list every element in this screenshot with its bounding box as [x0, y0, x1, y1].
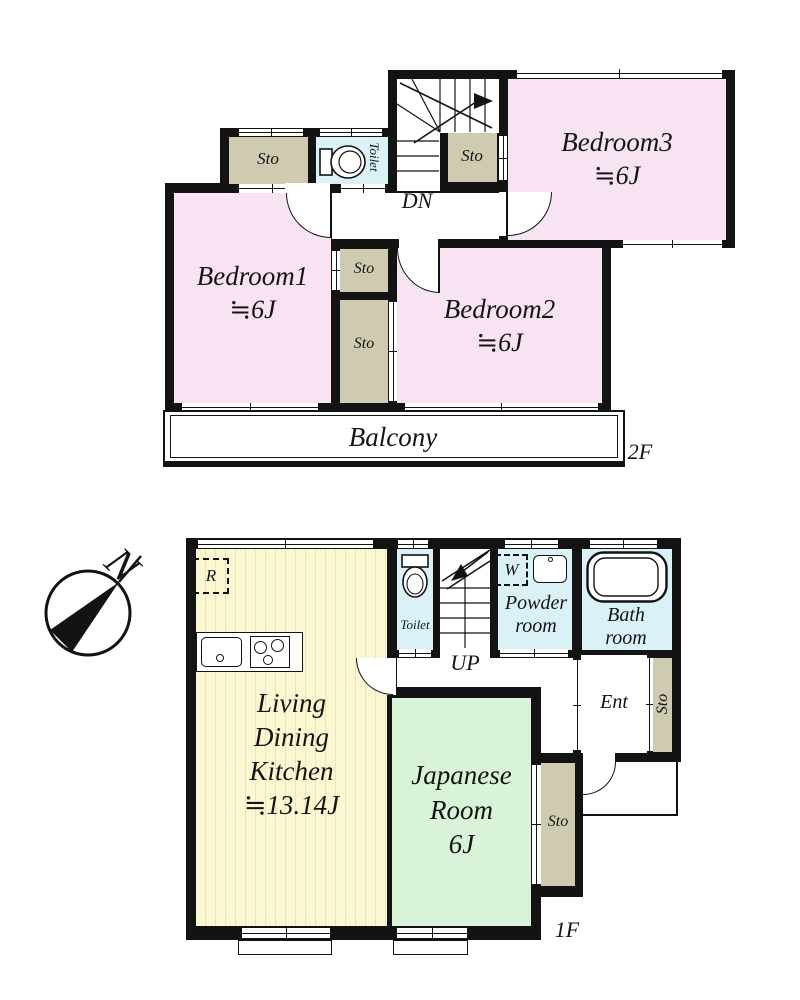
door-hall-entrance [573, 660, 581, 750]
bathtub-icon [586, 551, 668, 603]
window-toilet-1f [398, 540, 428, 548]
powder-sink-faucet [548, 557, 553, 562]
stove-burner-2 [271, 639, 284, 652]
bedroom2-label: Bedroom2 ≒6J [397, 293, 602, 359]
window-bedroom3-bottom [623, 240, 722, 248]
washer-box: W [495, 554, 528, 586]
door-toilet-1f [399, 649, 431, 657]
toilet-2f-label: Toilet [364, 122, 382, 192]
floor-1f-label: 1F [545, 917, 589, 943]
door-leaf-bedroom3 [506, 192, 508, 236]
bay-window-ldk [238, 940, 332, 955]
hallway-1f-corner [531, 658, 573, 687]
japanese-line1: Japanese [392, 758, 531, 793]
powder-line1: Powder [498, 592, 574, 615]
window-japanese-bottom [397, 928, 467, 938]
stove-burner-3 [263, 655, 273, 665]
ldk-area: ≒13.14J [196, 788, 387, 822]
entrance-door-gap [583, 753, 615, 762]
door-gap-bedroom1 [285, 183, 330, 193]
kitchen-sink-icon [201, 637, 242, 667]
bedroom1-area: ≒6J [174, 294, 331, 327]
storage-by-stairs-label: Sto [442, 146, 502, 166]
door-gap-bedroom2 [399, 239, 438, 248]
window-ldk-top [198, 540, 373, 548]
dn-label: DN [392, 188, 442, 214]
bedroom2-area: ≒6J [397, 327, 602, 360]
kitchen-sink-drain [216, 654, 224, 662]
door-powder [500, 649, 568, 657]
bay-window-japanese [393, 940, 468, 955]
window-powder [505, 540, 558, 548]
bedroom3-label: Bedroom3 ≒6J [508, 126, 726, 192]
ldk-line2: Dining [196, 720, 387, 754]
ldk-line3: Kitchen [196, 754, 387, 788]
floor-2f-label: 2F [618, 439, 662, 465]
storage-japanese-label: Sto [534, 812, 582, 831]
stairs-up-icon [439, 548, 491, 652]
bath-line1: Bath [586, 604, 666, 627]
bedroom2-name: Bedroom2 [397, 293, 602, 327]
toilet-icon-1f [399, 554, 433, 600]
bedroom3-area: ≒6J [508, 160, 726, 193]
window-storage-2f [239, 129, 303, 136]
refrigerator-label: R [206, 566, 216, 586]
hallway-1f-vertical [541, 687, 573, 753]
washer-label: W [504, 560, 518, 580]
up-label: UP [441, 650, 489, 676]
entrance-label: Ent [590, 690, 638, 714]
balcony-label: Balcony [263, 421, 523, 453]
storage-lower-label: Sto [334, 334, 394, 353]
window-bedroom3-top [517, 69, 722, 78]
toilet-icon-2f [318, 141, 370, 183]
bedroom3-name: Bedroom3 [508, 126, 726, 160]
storage-upper-label: Sto [334, 259, 394, 278]
powder-label: Powder room [498, 592, 574, 638]
stairs-down-icon [396, 78, 502, 196]
japanese-label: Japanese Room 6J [392, 758, 531, 862]
ldk-line1: Living [196, 686, 387, 720]
bath-line2: room [586, 627, 666, 650]
window-ldk-bottom [242, 928, 330, 938]
toilet-1f-label: Toilet [394, 617, 436, 633]
compass-north-icon: N [38, 538, 150, 664]
window-bath [590, 540, 657, 548]
ldk-label: Living Dining Kitchen ≒13.14J [196, 686, 387, 822]
closet-door-entrance-storage [646, 658, 653, 751]
north-label: N [95, 538, 149, 593]
powder-line2: room [498, 615, 574, 638]
japanese-line3: 6J [392, 827, 531, 862]
stove-burner-1 [254, 641, 267, 654]
floor-plan: Toilet Bedroom1 ≒6J Bedroom2 ≒6J Bedroom… [0, 0, 800, 1000]
door-leaf-bedroom2 [438, 248, 440, 293]
bedroom1-label: Bedroom1 ≒6J [174, 260, 331, 326]
storage-entrance-label: Sto [653, 672, 671, 736]
refrigerator-box: R [193, 558, 229, 594]
door-leaf-bedroom1 [330, 193, 332, 238]
japanese-line2: Room [392, 793, 531, 828]
bath-label: Bath room [586, 604, 666, 650]
bedroom1-name: Bedroom1 [174, 260, 331, 294]
storage-top-left-label: Sto [238, 149, 298, 169]
